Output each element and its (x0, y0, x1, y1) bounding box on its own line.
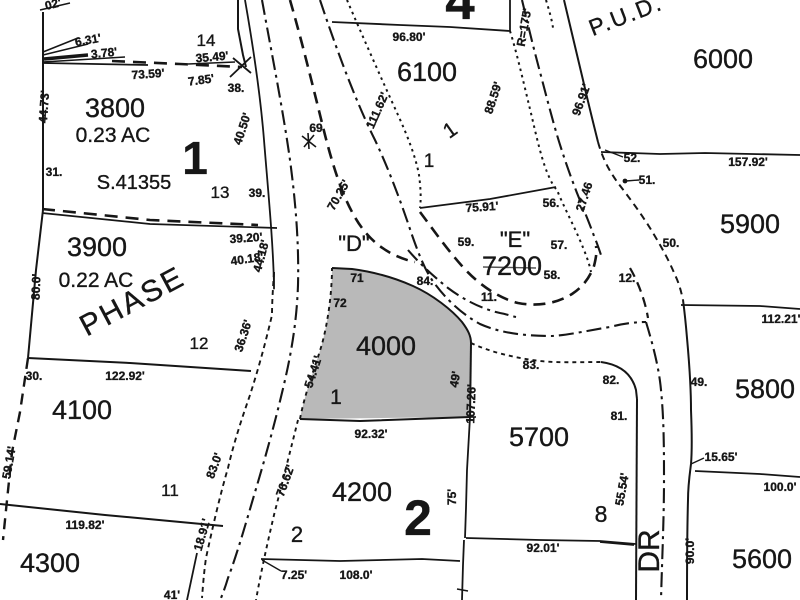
svg-text:38.: 38. (228, 81, 245, 95)
svg-text:58.: 58. (544, 268, 561, 282)
svg-text:49': 49' (447, 370, 464, 389)
svg-text:12.: 12. (619, 271, 636, 285)
svg-text:75.91': 75.91' (465, 199, 499, 215)
svg-text:5800: 5800 (735, 374, 795, 404)
svg-text:30.: 30. (26, 369, 43, 383)
svg-text:4300: 4300 (20, 548, 80, 578)
svg-text:2: 2 (404, 490, 432, 546)
svg-text:"D": "D" (338, 231, 370, 256)
svg-text:14: 14 (197, 31, 216, 50)
svg-text:4000: 4000 (356, 331, 416, 361)
svg-text:75': 75' (445, 489, 459, 505)
svg-text:12: 12 (190, 334, 209, 353)
svg-text:3900: 3900 (67, 232, 127, 262)
svg-text:50.: 50. (663, 236, 680, 250)
svg-text:15.65': 15.65' (705, 450, 738, 464)
svg-text:31.: 31. (46, 165, 63, 179)
svg-text:4100: 4100 (52, 395, 112, 425)
svg-text:81.: 81. (611, 409, 628, 423)
svg-text:4200: 4200 (332, 477, 392, 507)
svg-text:7.25': 7.25' (281, 568, 307, 582)
svg-text:69: 69 (309, 121, 323, 135)
svg-text:119.82': 119.82' (66, 518, 105, 532)
svg-text:59.: 59. (458, 235, 475, 249)
svg-text:11.: 11. (481, 290, 497, 304)
svg-text:71: 71 (350, 271, 364, 285)
svg-text:7200: 7200 (482, 251, 542, 281)
svg-text:S.41355: S.41355 (97, 172, 172, 194)
svg-text:6100: 6100 (397, 57, 457, 87)
svg-text:108.0': 108.0' (340, 568, 373, 582)
svg-text:DR: DR (633, 529, 666, 572)
svg-text:4: 4 (445, 0, 475, 31)
svg-text:92.01': 92.01' (527, 541, 560, 555)
svg-text:5900: 5900 (720, 209, 780, 239)
svg-text:3.78': 3.78' (90, 45, 118, 62)
svg-text:72: 72 (333, 296, 347, 310)
svg-text:49.: 49. (691, 375, 708, 389)
svg-text:100.0': 100.0' (764, 480, 797, 494)
svg-text:56.: 56. (543, 196, 560, 210)
svg-text:13: 13 (211, 183, 230, 202)
svg-text:39.: 39. (249, 186, 266, 200)
svg-text:107.26': 107.26' (463, 384, 478, 424)
svg-text:51.: 51. (639, 173, 656, 187)
svg-text:1: 1 (330, 386, 342, 409)
svg-text:52.: 52. (624, 151, 641, 165)
svg-text:73.59': 73.59' (131, 66, 165, 82)
svg-text:"E": "E" (500, 227, 530, 252)
svg-text:83.: 83. (523, 358, 540, 372)
svg-text:11: 11 (161, 481, 179, 500)
svg-text:8: 8 (595, 501, 608, 527)
svg-text:41': 41' (164, 588, 180, 600)
svg-text:6000: 6000 (693, 44, 753, 74)
svg-text:5700: 5700 (509, 422, 569, 452)
svg-text:5600: 5600 (732, 544, 792, 574)
svg-text:1: 1 (182, 132, 208, 184)
svg-text:57.: 57. (551, 238, 568, 252)
svg-text:92.32': 92.32' (355, 427, 388, 441)
svg-text:157.92': 157.92' (728, 155, 768, 169)
svg-text:80.0': 80.0' (29, 273, 44, 300)
svg-text:84.: 84. (417, 274, 434, 288)
svg-text:82.: 82. (603, 373, 620, 387)
svg-text:96.80': 96.80' (393, 30, 426, 44)
svg-text:44.73': 44.73' (36, 90, 52, 124)
svg-text:2: 2 (291, 522, 303, 547)
svg-text:0.23 AC: 0.23 AC (76, 124, 151, 147)
svg-text:1: 1 (424, 151, 435, 172)
svg-text:3800: 3800 (85, 93, 145, 123)
svg-text:122.92': 122.92' (105, 369, 145, 383)
svg-text:112.21': 112.21' (762, 312, 800, 326)
svg-text:90.0': 90.0' (683, 538, 697, 564)
svg-text:35.49': 35.49' (195, 49, 229, 66)
